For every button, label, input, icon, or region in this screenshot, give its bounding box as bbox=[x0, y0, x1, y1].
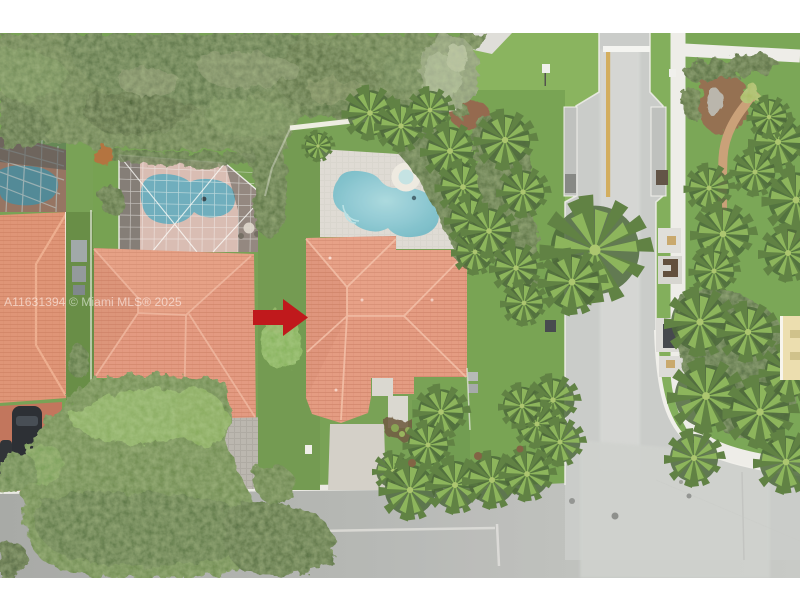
svg-text:A11631394 © Miami MLS® 2025: A11631394 © Miami MLS® 2025 bbox=[4, 295, 182, 309]
